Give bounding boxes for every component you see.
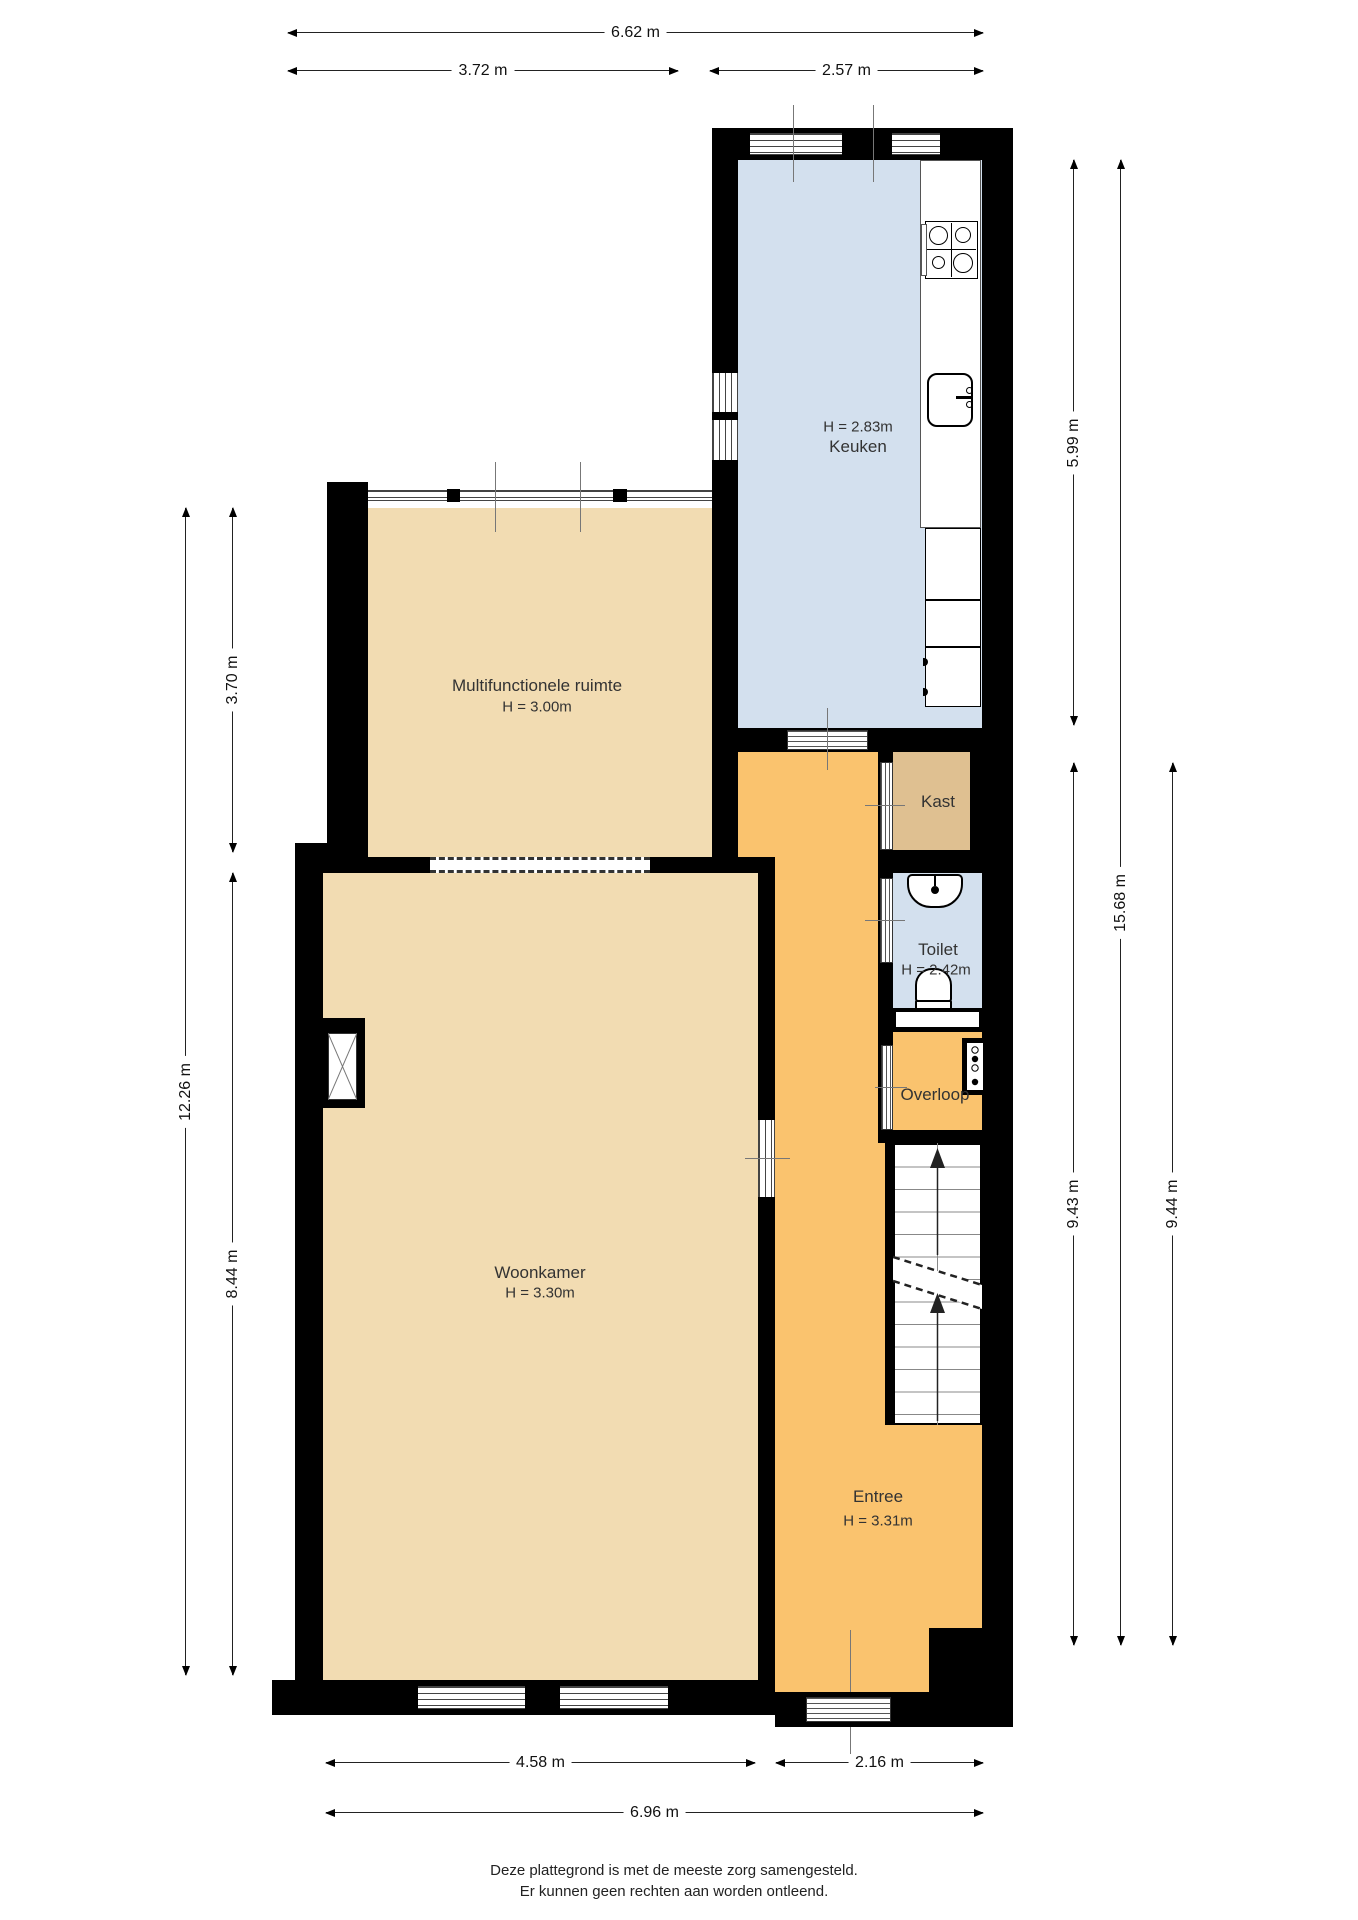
kitchen-appliance-box <box>925 647 981 707</box>
wall-kast-toilet <box>878 850 982 873</box>
arrowhead-icon <box>229 1666 237 1676</box>
wall-entree-notch <box>929 1628 982 1692</box>
wall-woonkamer-left <box>295 843 323 1680</box>
stove-control-strip <box>921 224 927 276</box>
washbasin-tap-dot <box>931 886 939 894</box>
staircase-overlay <box>893 1143 982 1425</box>
dim-tick <box>580 462 581 532</box>
room-woonkamer-height: H = 3.30m <box>505 1285 575 1302</box>
kitchen-counter <box>920 160 981 528</box>
dim-left-total: 12.26 m <box>185 508 186 1675</box>
room-woonkamer-label: Woonkamer <box>494 1263 585 1283</box>
dim-bottom-total: 6.96 m <box>326 1812 983 1813</box>
wall-outer-right <box>982 128 1013 1727</box>
sink-tap-dot <box>966 387 973 394</box>
dim-right-kitchen: 5.99 m <box>1073 160 1074 725</box>
disclaimer-line2: Er kunnen geen rechten aan worden ontlee… <box>490 1881 858 1902</box>
room-toilet-label: Toilet <box>918 940 958 960</box>
room-multifunctionele-label: Multifunctionele ruimte <box>452 676 622 696</box>
room-overloop-label: Overloop <box>901 1085 970 1105</box>
room-entree-floor-upper <box>738 752 878 862</box>
chimney-flue-icon <box>328 1033 357 1100</box>
wall-kitchen-left-lower <box>712 460 738 873</box>
dim-right-inner-label: 9.43 m <box>1065 1173 1083 1236</box>
room-keuken-label: Keuken <box>829 437 887 457</box>
room-toilet-height: H = 2.42m <box>901 962 971 979</box>
floorplan-canvas: H = 2.83m Keuken Multifunctionele ruimte… <box>0 0 1358 1920</box>
room-multifunctionele-height: H = 3.00m <box>502 699 572 716</box>
arrowhead-icon <box>974 29 984 37</box>
meter-cabinet-icon <box>966 1042 984 1091</box>
window-kitchen-top-right <box>892 133 940 155</box>
wall-overloop-stairs <box>893 1130 982 1143</box>
arrowhead-icon <box>709 67 719 75</box>
open-passage-dashed <box>430 857 650 873</box>
sink-tap-bar <box>956 396 972 399</box>
disclaimer-line1: Deze plattegrond is met de meeste zorg s… <box>490 1860 858 1881</box>
kitchen-appliance-box <box>925 528 981 600</box>
stove-grate-vline <box>951 223 952 277</box>
dim-left-total-label: 12.26 m <box>177 1056 195 1128</box>
window-mullion <box>447 489 460 502</box>
arrowhead-icon <box>1070 762 1078 772</box>
arrowhead-icon <box>1070 1636 1078 1646</box>
wall-kitchen-bottom <box>738 728 1013 752</box>
window-mullion <box>712 412 738 420</box>
dim-right-total: 15.68 m <box>1120 160 1121 1645</box>
dim-tick <box>873 105 874 182</box>
wall-multifunctionele-left <box>327 482 368 873</box>
dim-top-right-label: 2.57 m <box>815 62 878 80</box>
washbasin-tap <box>934 876 936 886</box>
arrowhead-icon <box>287 67 297 75</box>
dim-tick <box>495 462 496 532</box>
wall-kitchen-left-upper <box>712 128 738 373</box>
wall-toilet-bottom-inset <box>896 1012 979 1027</box>
wall-woonkamer-top-b <box>650 857 775 873</box>
room-entree-height: H = 3.31m <box>843 1513 913 1530</box>
front-door-entree <box>806 1697 891 1722</box>
burner-icon <box>953 253 973 273</box>
stairs-up-arrow-icon <box>930 1148 945 1168</box>
arrowhead-icon <box>669 67 679 75</box>
wall-stairs-left <box>885 1143 893 1425</box>
dim-right-inner: 9.43 m <box>1073 763 1074 1645</box>
arrowhead-icon <box>1117 1636 1125 1646</box>
dim-tick <box>850 1630 851 1692</box>
sink-tap-dot <box>966 401 973 408</box>
dim-bottom-total-label: 6.96 m <box>623 1804 686 1822</box>
dim-bottom-left: 4.58 m <box>326 1762 755 1763</box>
dim-tick <box>865 920 905 921</box>
dim-left-upper-label: 3.70 m <box>224 649 242 712</box>
arrowhead-icon <box>974 67 984 75</box>
burner-icon <box>955 227 971 243</box>
window-multifunctionele-top <box>368 490 712 501</box>
arrowhead-icon <box>325 1759 335 1767</box>
dim-top-left-label: 3.72 m <box>452 62 515 80</box>
dim-tick <box>745 1158 790 1159</box>
kitchen-appliance-box <box>925 600 981 647</box>
dim-right-outer-label: 9.44 m <box>1164 1173 1182 1236</box>
door-kast <box>880 762 893 850</box>
dim-right-kitchen-label: 5.99 m <box>1065 411 1083 474</box>
arrowhead-icon <box>1117 159 1125 169</box>
window-kitchen-top-left <box>750 133 842 155</box>
dim-top-left: 3.72 m <box>288 70 678 71</box>
dim-top-right: 2.57 m <box>710 70 983 71</box>
room-keuken-height: H = 2.83m <box>823 419 893 436</box>
arrowhead-icon <box>325 1809 335 1817</box>
dim-right-outer: 9.44 m <box>1172 763 1173 1645</box>
wall-kast-right-fill <box>970 752 982 860</box>
arrowhead-icon <box>746 1759 756 1767</box>
dim-bottom-right: 2.16 m <box>776 1762 983 1763</box>
arrowhead-icon <box>287 29 297 37</box>
window-woonkamer-bottom-left <box>418 1686 525 1709</box>
arrowhead-icon <box>1169 762 1177 772</box>
room-entree-floor-stairside <box>775 1143 885 1425</box>
burner-icon <box>932 256 945 269</box>
dim-top-total: 6.62 m <box>288 32 983 33</box>
wall-woonkamer-top-a <box>327 857 430 873</box>
room-kast-label: Kast <box>921 792 955 812</box>
disclaimer-text: Deze plattegrond is met de meeste zorg s… <box>490 1860 858 1902</box>
window-mullion <box>613 489 627 502</box>
dim-top-total-label: 6.62 m <box>604 24 667 42</box>
dim-bottom-left-label: 4.58 m <box>509 1754 572 1772</box>
arrowhead-icon <box>229 872 237 882</box>
arrowhead-icon <box>974 1759 984 1767</box>
dim-tick <box>865 805 905 806</box>
dim-right-total-label: 15.68 m <box>1112 867 1130 939</box>
dim-left-lower-label: 8.44 m <box>224 1243 242 1306</box>
arrowhead-icon <box>182 507 190 517</box>
dim-tick <box>827 708 828 770</box>
arrowhead-icon <box>775 1759 785 1767</box>
arrowhead-icon <box>1169 1636 1177 1646</box>
dim-left-upper: 3.70 m <box>232 508 233 852</box>
arrowhead-icon <box>1070 159 1078 169</box>
room-entree-label: Entree <box>853 1487 903 1507</box>
arrowhead-icon <box>182 1666 190 1676</box>
kitchen-sink-icon <box>927 373 973 427</box>
arrowhead-icon <box>229 843 237 853</box>
wall-entree-woonkamer-upper <box>758 873 775 1120</box>
dim-tick <box>793 105 794 182</box>
dim-bottom-right-label: 2.16 m <box>848 1754 911 1772</box>
room-entree-floor-mid <box>775 862 878 1143</box>
window-woonkamer-bottom-right <box>560 1686 668 1709</box>
wall-entree-woonkamer-lower <box>758 1197 775 1680</box>
dim-left-lower: 8.44 m <box>232 873 233 1675</box>
arrowhead-icon <box>1070 716 1078 726</box>
arrowhead-icon <box>974 1809 984 1817</box>
burner-icon <box>929 226 948 245</box>
arrowhead-icon <box>229 507 237 517</box>
